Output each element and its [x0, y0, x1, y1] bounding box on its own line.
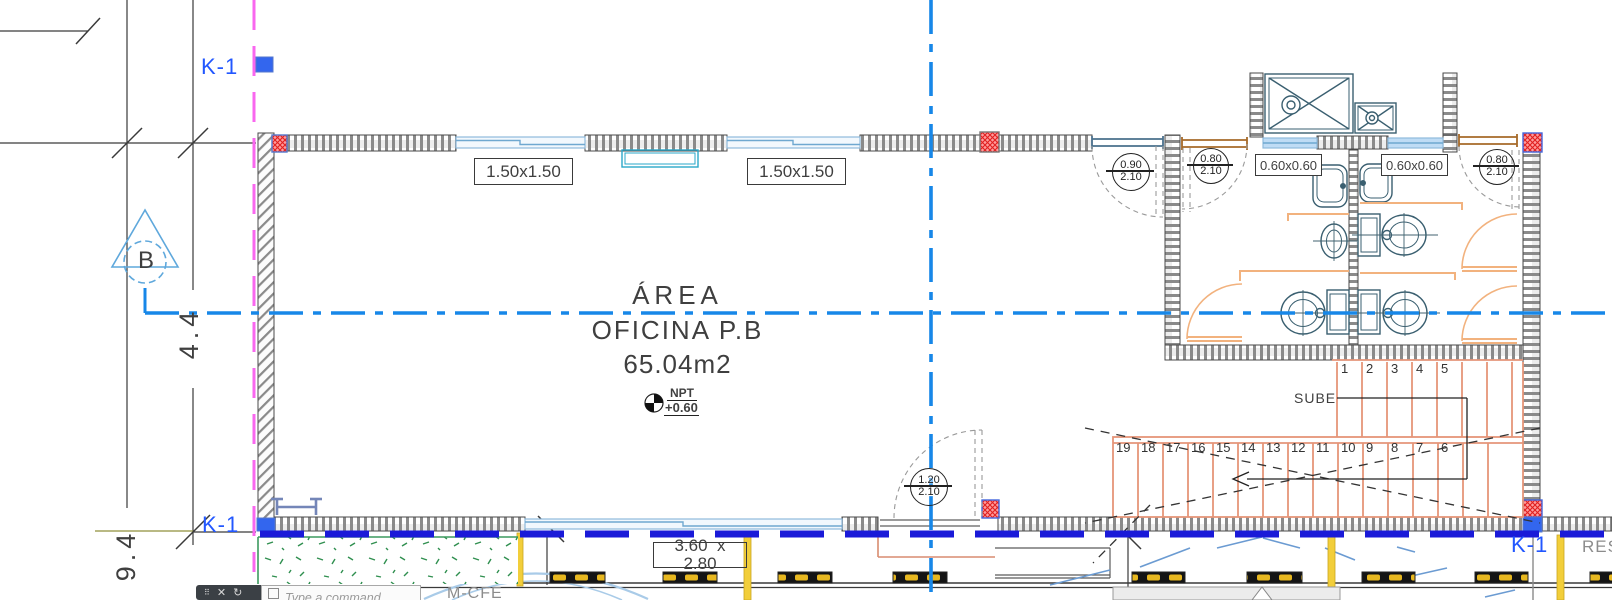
- stair-tread-number: 6: [1441, 440, 1448, 455]
- stair-tread-number: 2: [1366, 361, 1373, 376]
- grid-label-k1-bottom-right: K-1: [1511, 532, 1548, 558]
- door-tag-height: 2.10: [1486, 167, 1507, 179]
- drag-handle-icon[interactable]: ⠿: [204, 588, 210, 597]
- stair-tread-number: 19: [1116, 440, 1130, 455]
- window-tag-2: 1.50x1.50: [747, 158, 846, 185]
- landscape-hatch: [258, 537, 518, 584]
- door-tag-090: 0.90 2.10: [1112, 153, 1150, 191]
- grid-label-k1-bottom-left: K-1: [202, 512, 239, 538]
- stair-tread-number: 15: [1216, 440, 1230, 455]
- door-tag-divider: [1106, 170, 1154, 172]
- stair-tread-number: 7: [1416, 440, 1423, 455]
- window-tag-3: 0.60x0.60: [1255, 154, 1322, 176]
- stair-tread-number: 5: [1441, 361, 1448, 376]
- stair-tread-number: 1: [1341, 361, 1348, 376]
- grid-label-k1-top: K-1: [201, 54, 238, 80]
- stair-tread-number: 11: [1316, 440, 1330, 455]
- stair-tread-number: 18: [1141, 440, 1155, 455]
- cad-canvas[interactable]: K-1 K-1 K-1 B 4.4 9.4 ÁREA OFICINA P.B 6…: [0, 0, 1612, 600]
- door-tag-height: 2.10: [1200, 166, 1221, 178]
- stair-direction-label: SUBE: [1294, 390, 1336, 406]
- stair-tread-number: 3: [1391, 361, 1398, 376]
- steel-beam-symbol: [271, 499, 322, 515]
- lavatory-trays: [1265, 74, 1396, 133]
- centerlines: [145, 0, 1612, 600]
- dimension-9-4: 9.4: [111, 520, 145, 590]
- command-prompt-icon: [268, 588, 279, 599]
- door-tag-height: 2.10: [1120, 172, 1141, 184]
- stair-tread-number: 10: [1341, 440, 1355, 455]
- door-tag-height: 2.10: [918, 487, 939, 499]
- stair-tread-number: 8: [1391, 440, 1398, 455]
- stair-tread-number: 13: [1266, 440, 1280, 455]
- npt-value: +0.60: [664, 400, 699, 416]
- room-area: 65.04m2: [560, 349, 795, 380]
- door-tag-080-left: 0.80 2.10: [1193, 148, 1229, 184]
- label-res: RES: [1582, 537, 1612, 557]
- window-tag-1: 1.50x1.50: [474, 158, 573, 185]
- floorplan-drawing: [0, 0, 1612, 600]
- stall-dim-line1: 3.60 x: [650, 536, 750, 556]
- command-input[interactable]: Type a command: [261, 585, 421, 600]
- command-placeholder: Type a command: [285, 591, 381, 600]
- room-name: OFICINA P.B: [545, 315, 810, 346]
- stair-tread-number: 4: [1416, 361, 1423, 376]
- room-title: ÁREA: [560, 280, 795, 311]
- stair-tread-number: 17: [1166, 440, 1180, 455]
- grid-lines: [0, 0, 1141, 549]
- stair-tread-number: 16: [1191, 440, 1205, 455]
- door-tag-120: 1.20 2.10: [910, 468, 948, 506]
- stair-tread-number: 12: [1291, 440, 1305, 455]
- label-mcfe: M-CFE: [447, 585, 503, 600]
- door-tag-divider: [904, 485, 952, 487]
- door-tag-divider: [1187, 164, 1233, 166]
- recent-commands-icon[interactable]: ↻: [233, 586, 242, 599]
- door-tag-080-right: 0.80 2.10: [1479, 149, 1515, 185]
- door-tag-divider: [1473, 165, 1519, 167]
- window-tag-4: 0.60x0.60: [1381, 154, 1448, 176]
- grid-bubble-label: B: [133, 247, 159, 275]
- stair-tread-number: 9: [1366, 440, 1373, 455]
- viewport-panel-edge: [1113, 587, 1340, 600]
- counter: [622, 150, 698, 167]
- doors: [880, 134, 1520, 526]
- stair-tread-number: 14: [1241, 440, 1255, 455]
- stall-dim-line2: 2.80: [660, 554, 740, 574]
- npt-label: NPT: [667, 386, 697, 401]
- close-icon[interactable]: ✕: [217, 586, 226, 599]
- npt-marker: [645, 394, 663, 412]
- dimension-4-4: 4.4: [174, 298, 208, 368]
